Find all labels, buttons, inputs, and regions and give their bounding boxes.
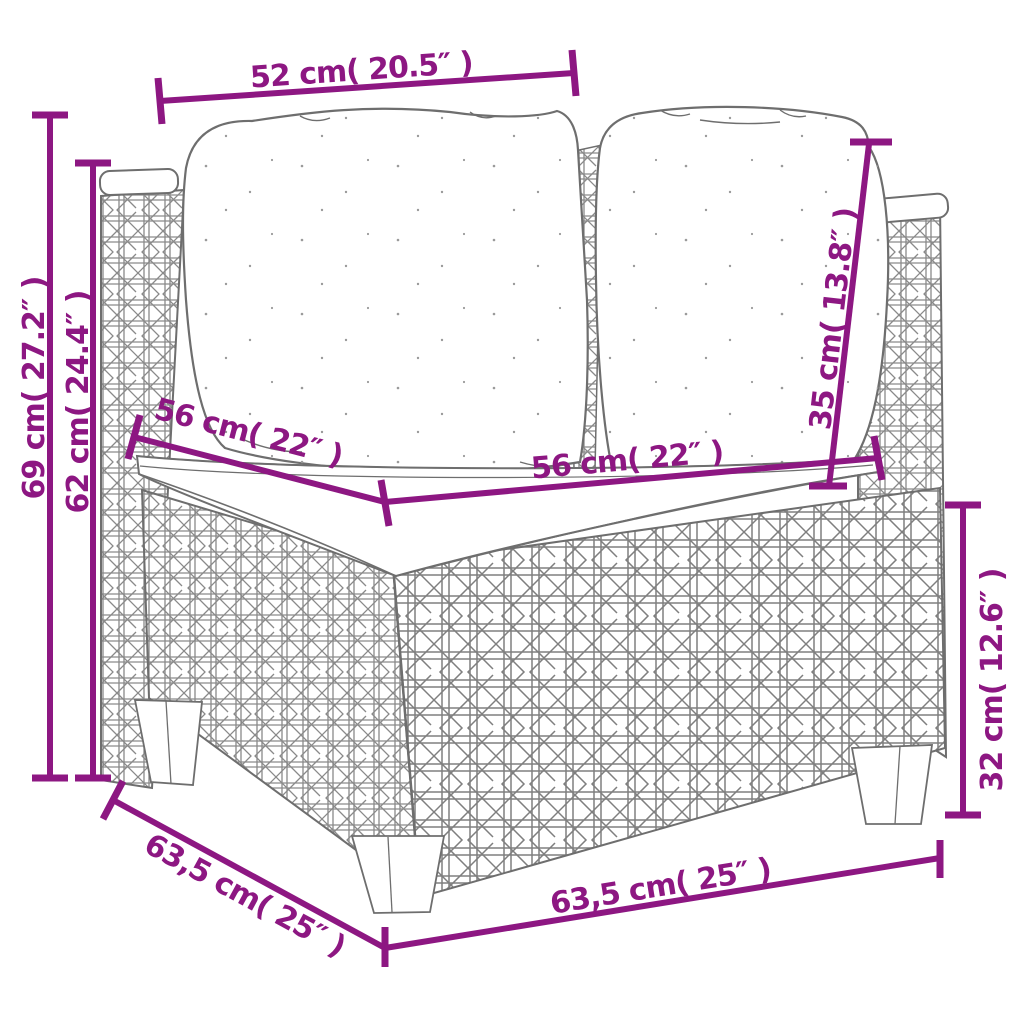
dim-label-overall-depth: 63,5 cm( 25″ ) bbox=[138, 827, 351, 964]
dim-label-overall-width: 63,5 cm( 25″ ) bbox=[548, 852, 774, 922]
right-leg bbox=[852, 745, 932, 824]
front-leg bbox=[352, 836, 444, 913]
dimension-diagram: 52 cm( 20.5″ ) 69 cm( 27.2″ ) 62 cm( 24.… bbox=[0, 0, 1024, 1024]
dim-label-arm-height: 62 cm( 24.4″ ) bbox=[61, 291, 96, 514]
sofa-dimension-svg: 52 cm( 20.5″ ) 69 cm( 27.2″ ) 62 cm( 24.… bbox=[0, 0, 1024, 1024]
dim-base-height: 32 cm( 12.6″ ) bbox=[945, 505, 1010, 815]
sofa-drawing bbox=[100, 107, 949, 913]
dim-label-base-height: 32 cm( 12.6″ ) bbox=[975, 569, 1010, 792]
dim-label-top-width: 52 cm( 20.5″ ) bbox=[249, 45, 474, 95]
dim-label-overall-height: 69 cm( 27.2″ ) bbox=[17, 277, 52, 500]
left-arm-cap bbox=[100, 169, 179, 196]
